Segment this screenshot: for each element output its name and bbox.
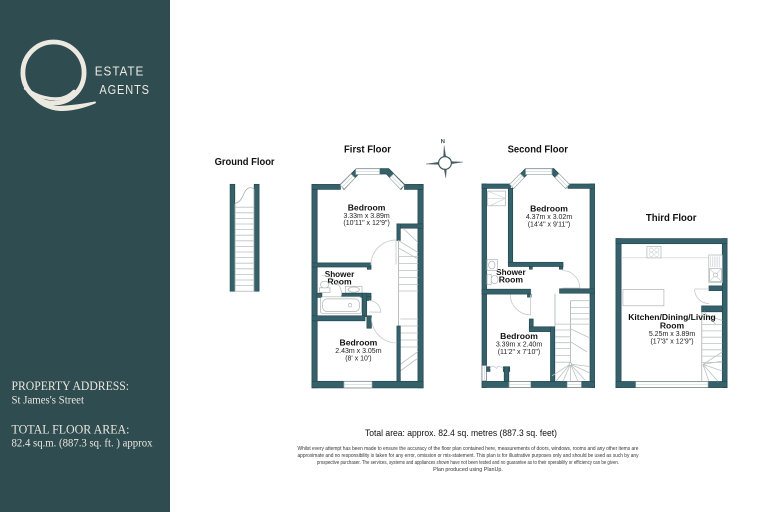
svg-text:Room: Room	[660, 320, 685, 330]
svg-text:82.4 sq.m. (887.3 sq. ft. ) ap: 82.4 sq.m. (887.3 sq. ft. ) approx	[12, 438, 153, 450]
svg-text:Bedroom: Bedroom	[500, 331, 538, 341]
svg-text:(17'3" x 12'9"): (17'3" x 12'9")	[650, 338, 693, 345]
svg-text:(10'11" x 12'9"): (10'11" x 12'9")	[343, 220, 389, 227]
svg-text:Ground Floor: Ground Floor	[215, 157, 275, 168]
svg-text:3.33m x 3.89m: 3.33m x 3.89m	[343, 213, 389, 220]
svg-text:N: N	[441, 139, 446, 145]
svg-text:Third Floor: Third Floor	[646, 213, 697, 224]
svg-text:AGENTS: AGENTS	[99, 83, 149, 97]
svg-text:First Floor: First Floor	[344, 144, 391, 155]
svg-text:Bedroom: Bedroom	[530, 204, 568, 214]
svg-text:Plan produced using PlanUp.: Plan produced using PlanUp.	[433, 467, 503, 473]
svg-text:Second Floor: Second Floor	[508, 144, 568, 155]
svg-text:5.25m x 3.89m: 5.25m x 3.89m	[649, 331, 695, 338]
svg-text:(14'4" x 9'11"): (14'4" x 9'11")	[528, 221, 571, 228]
svg-text:Total area: approx. 82.4 sq. m: Total area: approx. 82.4 sq. metres (887…	[365, 427, 557, 438]
svg-text:ESTATE: ESTATE	[95, 65, 145, 79]
svg-text:TOTAL FLOOR AREA:: TOTAL FLOOR AREA:	[12, 423, 130, 437]
svg-text:Whilst every attempt has been: Whilst every attempt has been made to en…	[298, 446, 639, 452]
svg-text:3.39m x 2.40m: 3.39m x 2.40m	[496, 342, 542, 349]
svg-text:St James's Street: St James's Street	[12, 393, 85, 407]
svg-text:(8' x 10'): (8' x 10')	[345, 355, 371, 362]
svg-text:(11'2" x 7'10"): (11'2" x 7'10")	[498, 349, 541, 356]
svg-text:2.43m x 3.05m: 2.43m x 3.05m	[335, 348, 381, 355]
svg-text:4.37m x 3.02m: 4.37m x 3.02m	[526, 214, 572, 221]
svg-text:Bedroom: Bedroom	[348, 202, 386, 212]
svg-text:Room: Room	[499, 275, 524, 285]
svg-text:approximate and no responsibil: approximate and no responsibility is tak…	[298, 453, 639, 459]
svg-text:PROPERTY ADDRESS:: PROPERTY ADDRESS:	[12, 379, 130, 393]
svg-text:prospective purchaser. The ser: prospective purchaser. The services, sys…	[317, 460, 619, 466]
svg-text:Bedroom: Bedroom	[340, 338, 378, 348]
